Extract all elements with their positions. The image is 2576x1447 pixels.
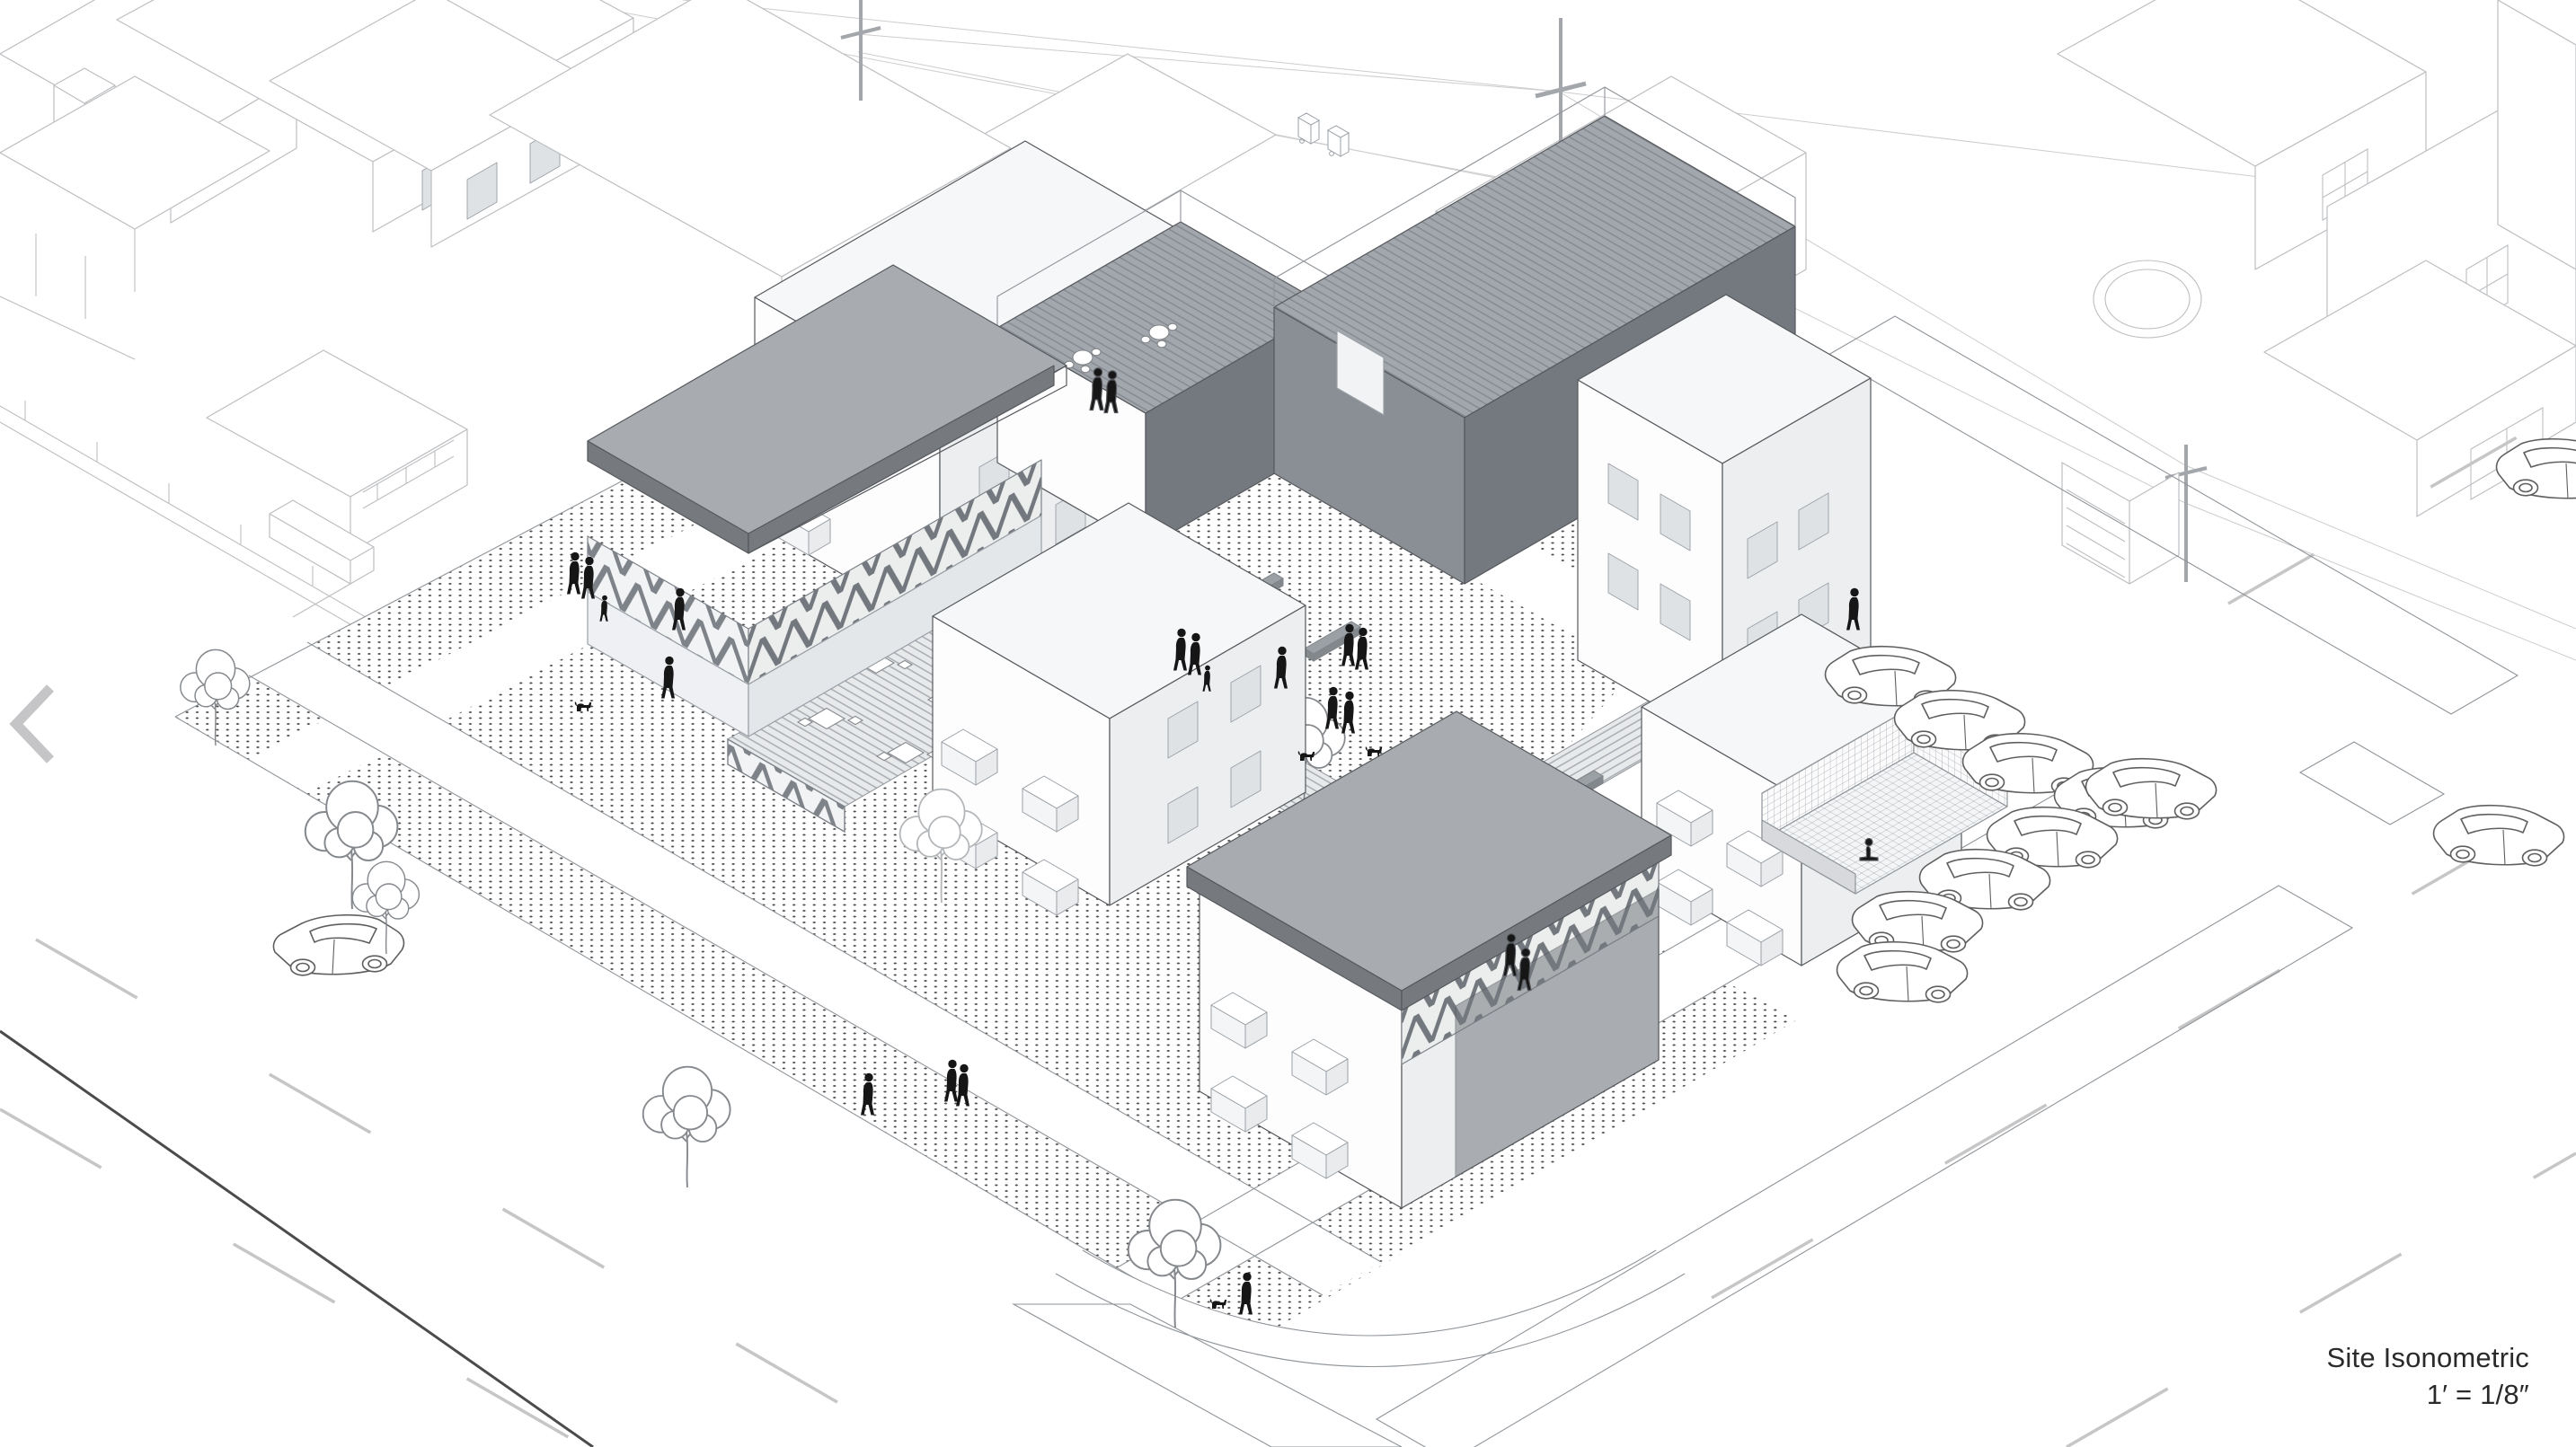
- trash-bins: [1298, 113, 1349, 156]
- chevron-left-icon: [5, 681, 63, 767]
- drawing-title: Site Isonometric: [2327, 1339, 2529, 1376]
- site-isometric-page: Site Isonometric 1′ = 1/8″: [0, 0, 2576, 1447]
- context-house: [207, 350, 467, 617]
- sidewalk: [2300, 742, 2444, 825]
- drawing-scale: 1′ = 1/8″: [2327, 1376, 2529, 1413]
- drawing-caption: Site Isonometric 1′ = 1/8″: [2327, 1339, 2529, 1413]
- trampoline: [2094, 260, 2201, 338]
- site-isometric-drawing: [0, 0, 2576, 1447]
- previous-slide-button[interactable]: [5, 681, 63, 767]
- context-house: [2058, 0, 2576, 584]
